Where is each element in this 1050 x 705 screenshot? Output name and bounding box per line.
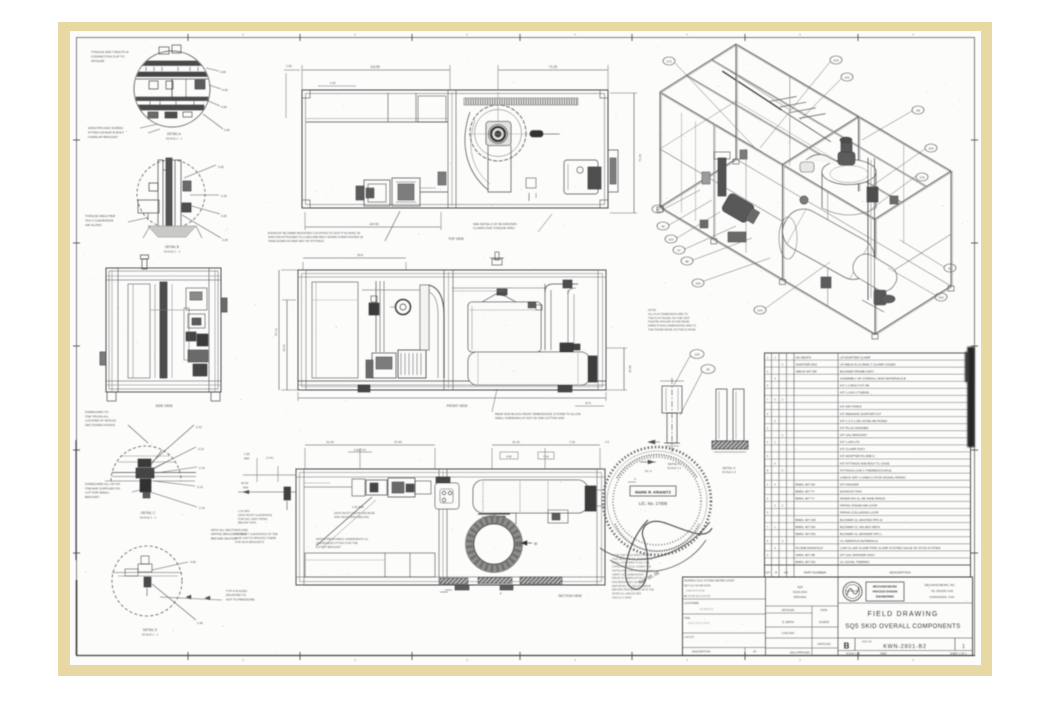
- svg-text:SPOILER: SPOILER: [91, 59, 105, 63]
- svg-text:1B: 1B: [916, 108, 920, 112]
- svg-text:273: 273: [666, 59, 671, 63]
- svg-text:SECTIONED HOOKS: SECTIONED HOOKS: [85, 423, 115, 427]
- svg-text:REF: REF: [243, 486, 249, 490]
- svg-text:4 1 0 6 2 2 J: 4 1 0 6 2 2 J: [700, 608, 714, 611]
- svg-text:KWN-2801-B2: KWN-2801-B2: [883, 644, 927, 650]
- svg-text:DISCREPANCIES SHALL BE: DISCREPANCIES SHALL BE: [612, 580, 646, 584]
- svg-text:41.31: 41.31: [512, 440, 520, 444]
- svg-text:37.60: 37.60: [394, 440, 402, 444]
- svg-text:BLOWER CL WASTED PPG E: BLOWER CL WASTED PPG E: [840, 518, 882, 522]
- svg-text:61: 61: [948, 266, 952, 270]
- svg-text:88: 88: [685, 259, 689, 263]
- svg-text:BMDL 407 TY: BMDL 407 TY: [796, 497, 815, 501]
- svg-text:30.8: 30.8: [357, 253, 363, 257]
- svg-text:RUNNING CALC SYSTEM CENTER: RUNNING CALC SYSTEM CENTER COUNT: [684, 580, 735, 583]
- svg-text:LAYOUT BRACKET: LAYOUT BRACKET: [316, 545, 341, 549]
- svg-text:(TYP): (TYP): [266, 456, 273, 460]
- svg-text:CLAMPS AND TORQUE SPEC: CLAMPS AND TORQUE SPEC: [473, 226, 516, 230]
- svg-text:TOP VIEW: TOP VIEW: [448, 237, 463, 241]
- svg-text:LOW CL AIR CLAMP PIPE CLAMP SY: LOW CL AIR CLAMP PIPE CLAMP SYSTEM VALVE…: [840, 546, 941, 550]
- svg-text:SET CLK NO SM DATE: SET CLK NO SM DATE: [684, 585, 711, 588]
- svg-text:ASSEMBLY OF OVERALL SKID MATER: ASSEMBLY OF OVERALL SKID MATERIALS B: [840, 377, 906, 381]
- svg-text:BELOW THIS): BELOW THIS): [238, 521, 256, 525]
- svg-text:ENG APPROVED: ENG APPROVED: [790, 652, 810, 655]
- svg-text:MARK R. KRANITZ: MARK R. KRANITZ: [635, 490, 671, 495]
- svg-text:SIDE VIEW: SIDE VIEW: [155, 404, 173, 408]
- svg-text:4.06: 4.06: [220, 70, 226, 74]
- svg-text:BMDL 407 DN: BMDL 407 DN: [796, 525, 816, 529]
- svg-text:205: 205: [695, 281, 700, 285]
- svg-text:KIT GAL WASHER ASSY: KIT GAL WASHER ASSY: [840, 553, 875, 557]
- svg-text:MECHANICSBURG, INC.: MECHANICSBURG, INC.: [925, 583, 956, 587]
- svg-text:AWS D1 1 SPEC: AWS D1 1 SPEC: [612, 595, 632, 599]
- svg-text:39: 39: [656, 207, 660, 211]
- svg-text:TEL (800)555 0199: TEL (800)555 0199: [931, 589, 954, 593]
- svg-text:TAKE DOWN AS PER SET OF FITTIN: TAKE DOWN AS PER SET OF FITTINGS: [268, 239, 324, 243]
- svg-text:4.06: 4.06: [221, 105, 227, 109]
- svg-text:104: 104: [938, 295, 943, 299]
- svg-text:7.16: 7.16: [543, 455, 549, 459]
- svg-text:35: 35: [706, 368, 710, 372]
- svg-text:170: 170: [919, 175, 924, 179]
- svg-text:KIT 1 AIR LTS: KIT 1 AIR LTS: [840, 440, 860, 444]
- svg-text:BLOWER FRAME ASSY: BLOWER FRAME ASSY: [840, 369, 874, 373]
- svg-text:104: 104: [928, 146, 933, 150]
- svg-text:73.18: 73.18: [638, 154, 642, 162]
- svg-text:3.25: 3.25: [222, 238, 228, 242]
- svg-text:KIT REMAINS SUPPORT KIT: KIT REMAINS SUPPORT KIT: [840, 412, 881, 416]
- svg-text:SCALE 1 : 1: SCALE 1 : 1: [164, 250, 181, 254]
- svg-text:PIPING COLLARING LOOP: PIPING COLLARING LOOP: [840, 511, 879, 515]
- svg-text:DETAIL D: DETAIL D: [143, 628, 158, 632]
- svg-text:AIR ALONG: AIR ALONG: [85, 223, 102, 227]
- svg-text:3.25: 3.25: [218, 165, 224, 169]
- svg-text:MECHANICSBURG: MECHANICSBURG: [873, 585, 897, 589]
- svg-text:KIT AIR TANKS: KIT AIR TANKS: [840, 405, 862, 409]
- svg-text:KIT CLAMP ASSY: KIT CLAMP ASSY: [840, 447, 865, 451]
- svg-text:ENGINEERING: ENGINEERING: [876, 595, 894, 599]
- svg-text:S. SMITH: S. SMITH: [782, 620, 794, 624]
- svg-text:SQ5: SQ5: [797, 585, 803, 589]
- svg-text:KIT 1 2 BOLT KIT AB: KIT 1 2 BOLT KIT AB: [840, 384, 869, 388]
- svg-text:1.06: 1.06: [197, 621, 203, 625]
- svg-text:No. 6: No. 6: [645, 469, 652, 473]
- svg-text:DESCRIPTION: DESCRIPTION: [692, 650, 710, 654]
- svg-text:BLOWER CL VALVES VBOX: BLOWER CL VALVES VBOX: [840, 525, 880, 529]
- svg-text:EXHAUST FAN: EXHAUST FAN: [840, 490, 861, 494]
- svg-text:36.55: 36.55: [628, 365, 632, 373]
- svg-text:XREF: XREF: [880, 653, 887, 656]
- svg-text:AMDL 407 AB: AMDL 407 AB: [796, 553, 815, 557]
- svg-text:KIT HANGER: KIT HANGER: [840, 483, 860, 487]
- svg-text:SCALE 1 : 1: SCALE 1 : 1: [166, 137, 183, 141]
- svg-text:4.06: 4.06: [190, 560, 196, 564]
- svg-text:AD 460474: AD 460474: [796, 355, 812, 359]
- svg-text:0.50(TYP): 0.50(TYP): [354, 448, 366, 452]
- svg-text:ORIGINAL: ORIGINAL: [793, 595, 807, 599]
- svg-text:DESCRIPTION: DESCRIPTION: [889, 571, 910, 575]
- svg-text:ITEM: ITEM: [684, 616, 690, 620]
- svg-text:6.00: 6.00: [330, 81, 336, 85]
- svg-text:2.13: 2.13: [196, 425, 202, 429]
- svg-text:BRACKET: BRACKET: [85, 495, 100, 499]
- svg-text:APPROVED: APPROVED: [817, 643, 831, 646]
- svg-text:WORK ALL WELDS PER: WORK ALL WELDS PER: [612, 592, 641, 596]
- svg-text:FRONT VIEW: FRONT VIEW: [447, 404, 469, 408]
- svg-text:1XX: 1XX: [833, 58, 839, 62]
- svg-text:STATE AND LOCAL CODES THE: STATE AND LOCAL CODES THE: [612, 565, 651, 569]
- svg-text:SCALE 1 : 1: SCALE 1 : 1: [140, 516, 157, 520]
- svg-text:BMDL 407 DK: BMDL 407 DK: [796, 483, 817, 487]
- svg-text:4.06: 4.06: [224, 128, 230, 132]
- svg-text:SCALE 1:4: SCALE 1:4: [667, 466, 681, 470]
- svg-text:FOR SKID BRACKETS: FOR SKID BRACKETS: [235, 540, 264, 544]
- svg-text:SHELL OVERHANG AT NOT AS ON: SHELL OVERHANG AT NOT AS ONE CUTTING AND: [495, 416, 564, 420]
- svg-text:BLOWER CL WASHER VPC L: BLOWER CL WASHER VPC L: [840, 532, 883, 536]
- svg-text:42.32: 42.32: [241, 481, 249, 485]
- svg-text:3.25: 3.25: [221, 214, 227, 218]
- svg-text:11/20/02: 11/20/02: [819, 620, 830, 624]
- svg-text:104.50: 104.50: [369, 222, 379, 226]
- svg-text:BMDL 407 DN: BMDL 407 DN: [796, 532, 816, 536]
- svg-text:2.13: 2.13: [198, 447, 204, 451]
- svg-text:KIT PLUG WASHER: KIT PLUG WASHER: [840, 426, 869, 430]
- svg-text:BEFORE SEATING: BEFORE SEATING: [211, 536, 238, 540]
- svg-text:4.06: 4.06: [222, 88, 228, 92]
- svg-text:AND VENT PIPES BELOW): AND VENT PIPES BELOW): [334, 515, 369, 519]
- svg-text:1XX: 1XX: [757, 308, 763, 312]
- svg-text:PRIOR TO FABRICATION ANY: PRIOR TO FABRICATION ANY: [612, 576, 648, 580]
- svg-text:BMDL 407 DN: BMDL 407 DN: [796, 560, 816, 564]
- svg-text:THIS SKID AND RELATED PARTS: THIS SKID AND RELATED PARTS: [612, 557, 653, 561]
- svg-text:FIELD DRAWING: FIELD DRAWING: [868, 611, 939, 618]
- svg-text:113.50: 113.50: [370, 65, 380, 69]
- svg-text:SQ43 2516: SQ43 2516: [793, 590, 808, 594]
- svg-text:DATE: DATE: [821, 608, 828, 612]
- svg-text:SHALL CONFORM TO ALL THE: SHALL CONFORM TO ALL THE: [612, 561, 650, 565]
- svg-text:142: 142: [844, 75, 849, 79]
- svg-text:SCALE 1:4: SCALE 1:4: [722, 470, 736, 474]
- svg-text:B: B: [844, 642, 850, 651]
- svg-text:FITTED ON BAR W BOLT: FITTED ON BAR W BOLT: [88, 130, 124, 134]
- svg-text:NOT TO PRESSURE: NOT TO PRESSURE: [226, 597, 255, 601]
- svg-text:PIPING STEAM AIR LOOP: PIPING STEAM AIR LOOP: [840, 504, 877, 508]
- svg-text:103: 103: [668, 237, 673, 241]
- svg-text:ABKLP 407 DR: ABKLP 407 DR: [796, 369, 818, 373]
- svg-text:DETAIL B: DETAIL B: [165, 245, 179, 249]
- svg-text:KIT GAL BRACKET: KIT GAL BRACKET: [840, 433, 867, 437]
- svg-text:KIT FITTINGS AND BOLT TL CAGE: KIT FITTINGS AND BOLT TL CAGE: [840, 461, 890, 465]
- svg-text:BMDL 407 TY: BMDL 407 TY: [796, 490, 815, 494]
- svg-text:ADAPTER DK2: ADAPTER DK2: [796, 362, 818, 366]
- svg-text:LP ADAPTER CLAMP: LP ADAPTER CLAMP: [840, 355, 871, 359]
- svg-text:BMDL 407 WK: BMDL 407 WK: [796, 518, 817, 522]
- svg-text:2.13: 2.13: [199, 466, 205, 470]
- svg-text:BY: BY: [753, 650, 757, 654]
- svg-text:2.5: 2.5: [605, 440, 609, 444]
- svg-text:KIT ADAPTER PLUMB G: KIT ADAPTER PLUMB G: [840, 454, 875, 458]
- svg-text:PLUMB MANIFOLD: PLUMB MANIFOLD: [796, 546, 824, 550]
- svg-text:45: 45: [661, 224, 665, 228]
- svg-text:CHECKED: CHECKED: [782, 631, 795, 635]
- svg-text:REF: REF: [244, 457, 250, 461]
- svg-text:THE INSIDE EDGE ON THE FLANGE: THE INSIDE EDGE ON THE FLANGE: [648, 328, 696, 332]
- svg-text:57: 57: [677, 248, 681, 252]
- svg-text:1.50: 1.50: [244, 452, 250, 456]
- svg-text:WINGTIPS AND SCREW: WINGTIPS AND SCREW: [88, 126, 123, 130]
- svg-text:LP WELD M 12 800G T CLAMP CA: LP WELD M 12 800G T CLAMP CAGES: [840, 362, 895, 366]
- svg-text:DETAIL C: DETAIL C: [141, 511, 156, 515]
- svg-text:OVERLAP BRACKET: OVERLAP BRACKET: [88, 135, 118, 139]
- svg-text:CL GOVAL THERMO: CL GOVAL THERMO: [840, 560, 870, 564]
- svg-text:CONNECTION CLIP TO: CONNECTION CLIP TO: [91, 54, 125, 58]
- svg-text:2 0 6 1 0 5 1 1 0 2 6: 2 0 6 1 0 5 1 1 0 2 6: [688, 622, 710, 625]
- svg-text:4 20 1 6 2 1 6 11: 4 20 1 6 2 1 6 11: [686, 590, 705, 593]
- svg-text:QTY: QTY: [765, 571, 771, 575]
- svg-text:TONGUE AND T-BOLTS W: TONGUE AND T-BOLTS W: [91, 50, 129, 54]
- svg-text:KIT 1 2 X 1 25L HOSE AB HOSE: KIT 1 2 X 1 25L HOSE AB HOSE2: [840, 419, 887, 423]
- svg-text:CL FERROUS MATERIALS: CL FERROUS MATERIALS: [840, 539, 878, 543]
- svg-text:9.06: 9.06: [506, 455, 512, 459]
- svg-text:2.13: 2.13: [197, 485, 203, 489]
- svg-text:BEFORE PROCEEDING WITH THE: BEFORE PROCEEDING WITH THE: [612, 588, 654, 592]
- svg-text:7.16: 7.16: [569, 440, 575, 444]
- svg-text:PROCESS DIVISION: PROCESS DIVISION: [873, 590, 898, 594]
- svg-text:31.03: 31.03: [326, 440, 334, 444]
- svg-text:KIT 1 CLR 2 TUBING: KIT 1 CLR 2 TUBING: [840, 391, 870, 395]
- svg-text:REPORTED TO THE ENGINEER: REPORTED TO THE ENGINEER: [612, 584, 651, 588]
- svg-text:SECTION VIEW: SECTION VIEW: [558, 594, 581, 598]
- svg-text:LIC. No. 17008: LIC. No. 17008: [639, 501, 668, 506]
- svg-text:SHEET 1 OF 1: SHEET 1 OF 1: [950, 653, 967, 656]
- svg-text:MIXER DIS CL AB VANE RINGS: MIXER DIS CL AB VANE RINGS: [840, 497, 885, 501]
- svg-text:TAG 2 CLEARANCE: TAG 2 CLEARANCE: [85, 218, 113, 222]
- svg-text:SQ5 SKID OVERALL COMPONENTS: SQ5 SKID OVERALL COMPONENTS: [845, 623, 960, 630]
- svg-text:DETAILED: DETAILED: [782, 608, 795, 612]
- svg-text:DWG NO: DWG NO: [862, 642, 872, 644]
- svg-text:CHECK OFF 1 LINES 2 STUD SIGN: CHECK OFF 1 LINES 2 STUD SIGNAL PIPING: [840, 475, 906, 479]
- svg-text:DETAIL A: DETAIL A: [167, 132, 182, 136]
- svg-text:1.50: 1.50: [286, 64, 292, 68]
- svg-text:71.25: 71.25: [549, 65, 557, 69]
- svg-text:NOTE THE FIELD ERECTION OF: NOTE THE FIELD ERECTION OF: [612, 553, 652, 557]
- svg-text:126: 126: [694, 353, 699, 357]
- svg-text:57.13: 57.13: [274, 328, 278, 336]
- svg-text:SCALE 1:10: SCALE 1:10: [846, 653, 860, 656]
- svg-text:FITTINGS LOW 1 THERMOCOUPLE: FITTINGS LOW 1 THERMOCOUPLE: [840, 468, 892, 472]
- svg-text:2.13: 2.13: [199, 506, 205, 510]
- svg-text:R: R: [775, 571, 777, 575]
- svg-text:1: 1: [962, 644, 965, 650]
- svg-text:1.31 MIN: 1.31 MIN: [352, 505, 364, 509]
- svg-text:NO: NO: [784, 571, 788, 575]
- svg-text:SOMEWHERE, OHIO: SOMEWHERE, OHIO: [929, 595, 954, 599]
- svg-text:PART NUMBER: PART NUMBER: [804, 571, 827, 575]
- svg-text:LAYOUT: LAYOUT: [684, 635, 695, 639]
- svg-text:VERIFY ALL DIMENSIONS: VERIFY ALL DIMENSIONS: [612, 572, 644, 576]
- svg-text:CUSTOMER: CUSTOMER: [684, 601, 699, 605]
- svg-text:46.63: 46.63: [282, 344, 286, 352]
- svg-text:3.25: 3.25: [221, 194, 227, 198]
- svg-text:INSTALLING CONTRACTOR SHALL: INSTALLING CONTRACTOR SHALL: [612, 568, 655, 572]
- svg-text:SCALE 1 : 1: SCALE 1 : 1: [142, 633, 159, 637]
- svg-text:BK 3 5 04 JL 0 1 2 6 15: BK 3 5 04 JL 0 1 2 6 15: [684, 595, 711, 598]
- svg-text:10.5: 10.5: [585, 401, 591, 405]
